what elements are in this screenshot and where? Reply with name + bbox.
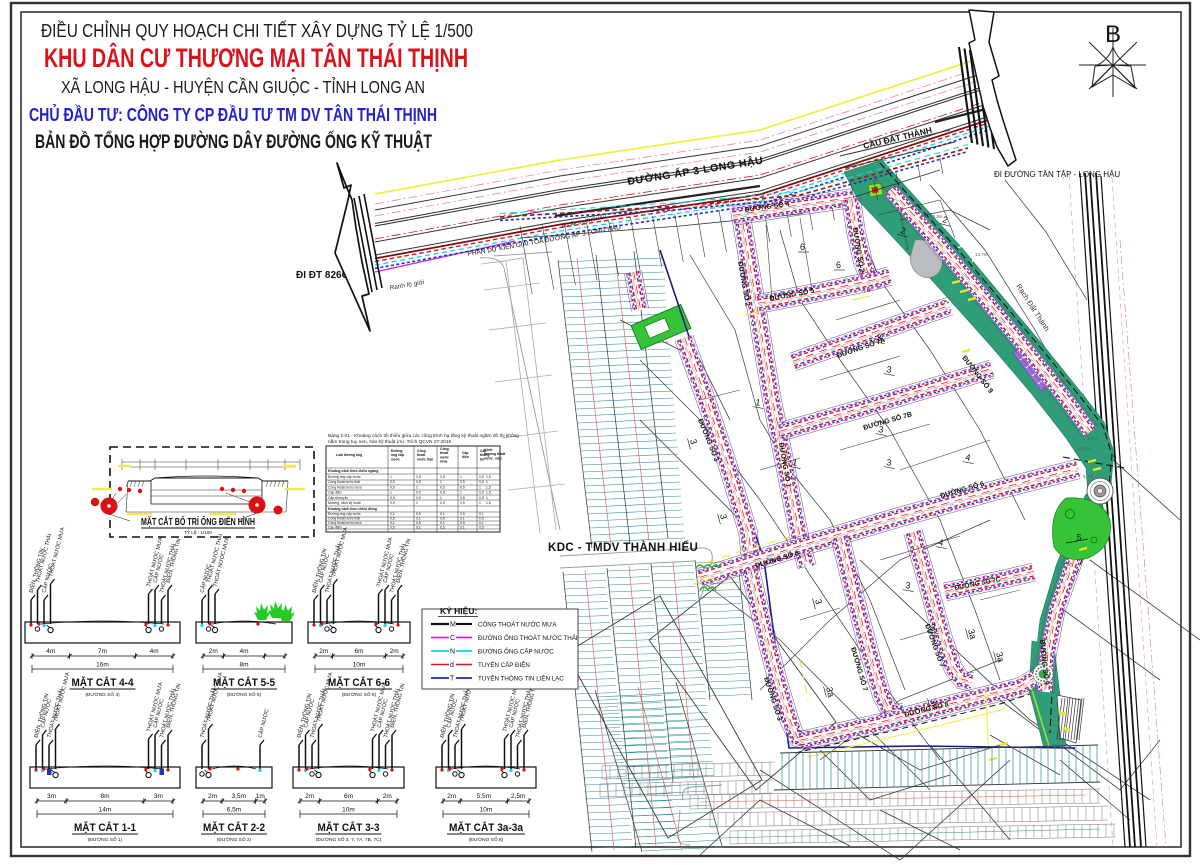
svg-text:1,5: 1,5: [486, 485, 491, 489]
svg-text:0,1: 0,1: [416, 517, 421, 521]
svg-text:1: 1: [479, 485, 481, 489]
svg-text:2m: 2m: [319, 648, 328, 655]
svg-text:0,5: 0,5: [440, 517, 445, 521]
svg-text:KDC - TMDV THÀNH HIẾU: KDC - TMDV THÀNH HIẾU: [548, 541, 698, 554]
svg-text:4m: 4m: [150, 648, 159, 655]
svg-text:0,5: 0,5: [479, 480, 484, 484]
svg-text:6m: 6m: [344, 793, 353, 800]
svg-text:0,1: 0,1: [440, 512, 445, 516]
svg-text:d: d: [450, 662, 454, 669]
svg-text:7m: 7m: [98, 648, 107, 655]
svg-text:1: 1: [486, 496, 488, 500]
svg-text:10m: 10m: [342, 807, 355, 814]
svg-text:M: M: [450, 622, 456, 629]
svg-text:KÝ HIỆU:: KÝ HIỆU:: [440, 605, 477, 616]
svg-text:29.3m: 29.3m: [1056, 378, 1069, 383]
svg-text:0,5: 0,5: [479, 475, 484, 479]
svg-text:1: 1: [460, 475, 462, 479]
svg-text:5,5m: 5,5m: [477, 793, 491, 800]
svg-text:0,1: 0,1: [460, 526, 465, 530]
svg-text:(ĐƯỜNG SỐ 4): (ĐƯỜNG SỐ 4): [85, 691, 120, 698]
svg-text:0,5: 0,5: [460, 512, 465, 516]
svg-text:B: B: [1105, 21, 1121, 48]
svg-text:4m: 4m: [46, 648, 55, 655]
svg-text:1: 1: [416, 501, 418, 505]
svg-text:2,5m: 2,5m: [511, 793, 525, 800]
svg-text:0,1: 0,1: [479, 512, 484, 516]
svg-text:0,5: 0,5: [479, 526, 484, 530]
svg-text:Cống thoát nước mưa: Cống thoát nước mưa: [328, 521, 362, 525]
svg-text:0,1: 0,1: [416, 526, 421, 530]
svg-text:3m: 3m: [47, 793, 56, 800]
svg-text:0,5: 0,5: [390, 501, 395, 505]
svg-text:(ĐƯỜNG SỐ 8): (ĐƯỜNG SỐ 8): [469, 836, 504, 843]
svg-text:Loại đường ống: Loại đường ống: [336, 453, 362, 457]
svg-text:T: T: [450, 676, 455, 683]
svg-text:1: 1: [416, 485, 418, 489]
svg-text:Cống thoát nước mưa: Cống thoát nước mưa: [328, 485, 362, 489]
svg-text:8m: 8m: [239, 662, 248, 669]
svg-text:MẶT CẮT 3-3: MẶT CẮT 3-3: [318, 821, 380, 834]
svg-text:1: 1: [479, 501, 481, 505]
svg-text:điện: điện: [462, 455, 469, 459]
svg-text:2m: 2m: [305, 793, 314, 800]
svg-text:(ĐƯỜNG SỐ 1): (ĐƯỜNG SỐ 1): [88, 836, 123, 843]
svg-text:0,1: 0,1: [440, 521, 445, 525]
svg-text:ĐIỀU CHỈNH QUY HOẠCH CHI TIẾT: ĐIỀU CHỈNH QUY HOẠCH CHI TIẾT XÂY DỰNG T…: [41, 20, 473, 41]
svg-text:ĐI ĐƯỜNG TÂN TẬP - LONG HẬU: ĐI ĐƯỜNG TÂN TẬP - LONG HẬU: [994, 170, 1120, 179]
svg-text:0,5: 0,5: [416, 496, 421, 500]
svg-text:Cáp thông tin: Cáp thông tin: [328, 496, 348, 500]
svg-text:MẶT CẮT BỐ TRÍ ỐNG ĐIỂN HÌNH: MẶT CẮT BỐ TRÍ ỐNG ĐIỂN HÌNH: [141, 514, 255, 528]
svg-text:(ĐƯỜNG SỐ 6): (ĐƯỜNG SỐ 6): [342, 691, 377, 698]
svg-text:MẶT CẮT 3a-3a: MẶT CẮT 3a-3a: [449, 821, 524, 834]
svg-text:13.7m: 13.7m: [975, 252, 988, 257]
svg-text:1,5: 1,5: [486, 475, 491, 479]
svg-text:16m: 16m: [96, 662, 109, 669]
svg-text:1: 1: [486, 480, 488, 484]
svg-text:Khoảng cách theo chiều đứng: Khoảng cách theo chiều đứng: [328, 507, 377, 511]
svg-text:nước, mép: nước, mép: [484, 456, 502, 460]
svg-text:ĐƯỜNG ỐNG THOÁT NƯỚC THẢI: ĐƯỜNG ỐNG THOÁT NƯỚC THẢI: [478, 635, 578, 642]
svg-text:1,5: 1,5: [486, 491, 491, 495]
svg-text:0,5: 0,5: [479, 517, 484, 521]
svg-text:0,5: 0,5: [416, 475, 421, 479]
svg-text:1,5: 1,5: [486, 501, 491, 505]
svg-text:1: 1: [390, 491, 392, 495]
svg-text:TỶ LỆ : 1/100: TỶ LỆ : 1/100: [184, 528, 212, 535]
svg-text:0,5: 0,5: [390, 526, 395, 530]
svg-text:1: 1: [460, 491, 462, 495]
svg-text:Bảng 2.01 - Khoảng cách tối th: Bảng 2.01 - Khoảng cách tối thiểu giữa c…: [328, 432, 519, 439]
svg-text:MẶT CẮT 2-2: MẶT CẮT 2-2: [203, 821, 265, 834]
svg-text:Đường ống cấp nước: Đường ống cấp nước: [328, 475, 361, 479]
svg-text:10m: 10m: [480, 807, 493, 814]
svg-text:Cống thoát nước thải: Cống thoát nước thải: [328, 480, 360, 484]
svg-text:N: N: [450, 649, 455, 656]
svg-text:0,1: 0,1: [460, 517, 465, 521]
svg-text:0,5: 0,5: [416, 480, 421, 484]
svg-text:0,5: 0,5: [440, 526, 445, 530]
svg-text:Cáp điện: Cáp điện: [328, 491, 342, 495]
svg-text:6m: 6m: [354, 648, 363, 655]
svg-text:CỐNG THOÁT NƯỚC MƯA: CỐNG THOÁT NƯỚC MƯA: [478, 622, 557, 629]
svg-text:40.3m: 40.3m: [930, 214, 943, 219]
svg-text:TUYẾN CẤP ĐIỆN: TUYẾN CẤP ĐIỆN: [478, 661, 530, 669]
svg-text:1: 1: [440, 480, 442, 484]
svg-text:0,5: 0,5: [460, 485, 465, 489]
svg-text:Cáp điện: Cáp điện: [328, 526, 342, 530]
svg-text:2m: 2m: [447, 793, 456, 800]
svg-text:CHỦ ĐẦU TƯ: CÔNG TY CP ĐẦU TƯ: CHỦ ĐẦU TƯ: CÔNG TY CP ĐẦU TƯ TM DV TÂN …: [29, 104, 437, 125]
svg-text:0,5: 0,5: [416, 512, 421, 516]
svg-text:0,5: 0,5: [390, 496, 395, 500]
svg-text:MẶT CẮT 1-1: MẶT CẮT 1-1: [74, 821, 136, 834]
svg-text:8m: 8m: [100, 793, 109, 800]
svg-text:0,5: 0,5: [479, 496, 484, 500]
svg-text:nước thải: nước thải: [417, 457, 433, 461]
svg-text:16.7m: 16.7m: [1078, 446, 1091, 451]
svg-text:0,5: 0,5: [440, 475, 445, 479]
svg-text:7.5m: 7.5m: [1063, 562, 1073, 567]
svg-text:2m: 2m: [390, 648, 399, 655]
svg-text:0,5: 0,5: [460, 521, 465, 525]
svg-text:4m: 4m: [239, 648, 248, 655]
svg-text:(ĐƯỜNG SỐ 3, 7, 7A, 7B, 7C): (ĐƯỜNG SỐ 3, 7, 7A, 7B, 7C): [316, 836, 382, 843]
svg-text:BẢN ĐỒ TỔNG HỢP ĐƯỜNG DÂY ĐƯỜN: BẢN ĐỒ TỔNG HỢP ĐƯỜNG DÂY ĐƯỜNG ỐNG KỸ T…: [35, 131, 432, 153]
svg-text:0,5: 0,5: [416, 521, 421, 525]
svg-text:ĐI ĐT 826C: ĐI ĐT 826C: [296, 270, 349, 281]
svg-text:XÃ LONG HẬU - HUYỆN CẦN GIUỘC: XÃ LONG HẬU - HUYỆN CẦN GIUỘC - TỈNH LON…: [61, 76, 425, 97]
svg-text:mưa: mưa: [440, 460, 447, 464]
svg-text:6: 6: [836, 260, 841, 270]
svg-text:Đường ống cấp nước: Đường ống cấp nước: [328, 512, 361, 516]
svg-text:0,5: 0,5: [440, 491, 445, 495]
svg-text:6: 6: [800, 242, 805, 252]
svg-text:1: 1: [440, 496, 442, 500]
svg-text:Cống thoát nước thải: Cống thoát nước thải: [328, 517, 360, 521]
svg-text:10m: 10m: [353, 662, 366, 669]
svg-text:(ĐƯỜNG SỐ 5): (ĐƯỜNG SỐ 5): [227, 691, 262, 698]
svg-text:0,5: 0,5: [390, 517, 395, 521]
svg-text:2m: 2m: [208, 793, 217, 800]
svg-text:Mương, rãnh kỹ thuật: Mương, rãnh kỹ thuật: [328, 501, 361, 505]
svg-text:0,1: 0,1: [479, 521, 484, 525]
svg-text:0,5: 0,5: [416, 491, 421, 495]
svg-text:14m: 14m: [99, 807, 112, 814]
svg-text:nước: nước: [391, 457, 400, 461]
svg-text:0,5: 0,5: [440, 501, 445, 505]
svg-text:ĐƯỜNG ỐNG CẤP NƯỚC: ĐƯỜNG ỐNG CẤP NƯỚC: [478, 649, 554, 656]
svg-text:0,1: 0,1: [390, 512, 395, 516]
svg-text:3,5m: 3,5m: [232, 793, 246, 800]
svg-text:0,5: 0,5: [460, 480, 465, 484]
svg-text:TUYẾN THÔNG TIN LIÊN LẠC: TUYẾN THÔNG TIN LIÊN LẠC: [478, 675, 564, 683]
svg-text:KHU DÂN CƯ THƯƠNG MẠI TÂN THÁI: KHU DÂN CƯ THƯƠNG MẠI TÂN THÁI THỊNH: [44, 42, 468, 73]
svg-text:0,5: 0,5: [390, 485, 395, 489]
svg-text:0,5: 0,5: [460, 501, 465, 505]
svg-text:C: C: [450, 635, 455, 642]
svg-text:2m: 2m: [209, 648, 218, 655]
svg-text:MẶT CẮT 4-4: MẶT CẮT 4-4: [72, 676, 135, 689]
svg-text:Khoảng cách theo chiều ngang: Khoảng cách theo chiều ngang: [328, 469, 378, 473]
svg-text:1.7m: 1.7m: [1087, 436, 1097, 441]
svg-text:6,5m: 6,5m: [227, 807, 241, 814]
svg-text:0,5: 0,5: [440, 485, 445, 489]
svg-text:0,5: 0,5: [390, 480, 395, 484]
svg-text:0,5: 0,5: [479, 491, 484, 495]
svg-text:3m: 3m: [154, 793, 163, 800]
svg-text:0,5: 0,5: [460, 496, 465, 500]
svg-text:2m: 2m: [383, 793, 392, 800]
svg-text:(ĐƯỜNG SỐ 2): (ĐƯỜNG SỐ 2): [217, 836, 252, 843]
svg-text:nằm trong tuy nen, hào kỹ thuậ: nằm trong tuy nen, hào kỹ thuật (m). Trí…: [328, 438, 452, 445]
svg-text:0,1: 0,1: [390, 521, 395, 525]
svg-text:1: 1: [390, 475, 392, 479]
svg-text:5.7m: 5.7m: [1083, 474, 1093, 479]
